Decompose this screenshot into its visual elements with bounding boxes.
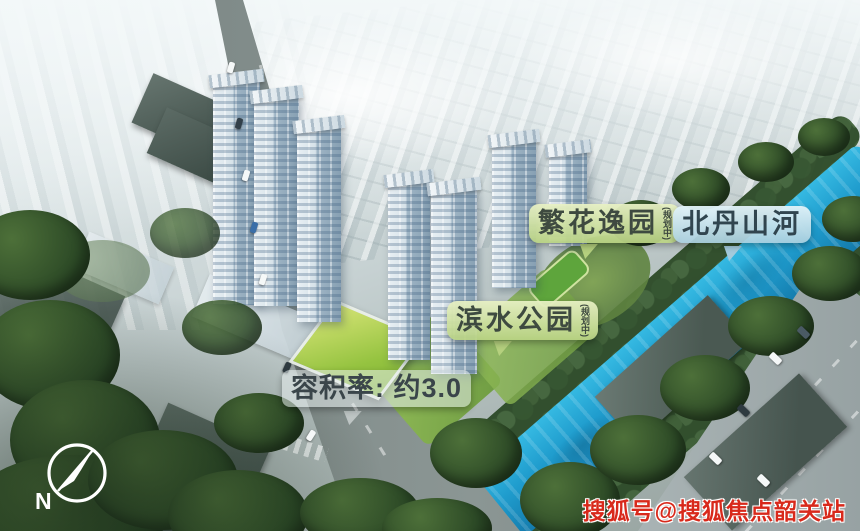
label-fanhua-text: 繁花逸园 <box>538 208 658 239</box>
label-beidan-shanhe: 北丹山河 <box>673 206 811 243</box>
label-plot-ratio-text: 容积率: 约3.0 <box>291 373 462 404</box>
north-compass-icon: N <box>30 438 114 514</box>
label-fanhua-planned-tag: (规划中) <box>662 207 671 240</box>
sohu-watermark: 搜狐号@搜狐焦点韶关站 <box>583 492 846 526</box>
label-binshui-planned-tag: (规划中) <box>580 304 589 337</box>
label-binshui-park: 滨水公园 (规划中) <box>447 301 598 340</box>
label-binshui-pointer <box>490 341 512 356</box>
label-beidan-pointer <box>720 246 742 261</box>
compass-north-letter: N <box>35 488 52 514</box>
corner-shade <box>0 0 860 531</box>
label-beidan-text: 北丹山河 <box>682 209 802 240</box>
label-fanhua-pointer <box>576 244 598 259</box>
label-plot-ratio-pointer <box>340 411 361 425</box>
label-plot-ratio: 容积率: 约3.0 <box>282 370 471 407</box>
aerial-render-scene: 繁花逸园 (规划中) 北丹山河 滨水公园 (规划中) 容积率: 约3.0 N 搜… <box>0 0 860 531</box>
label-fanhua-yiyuan: 繁花逸园 (规划中) <box>529 204 680 243</box>
label-binshui-text: 滨水公园 <box>456 305 576 336</box>
